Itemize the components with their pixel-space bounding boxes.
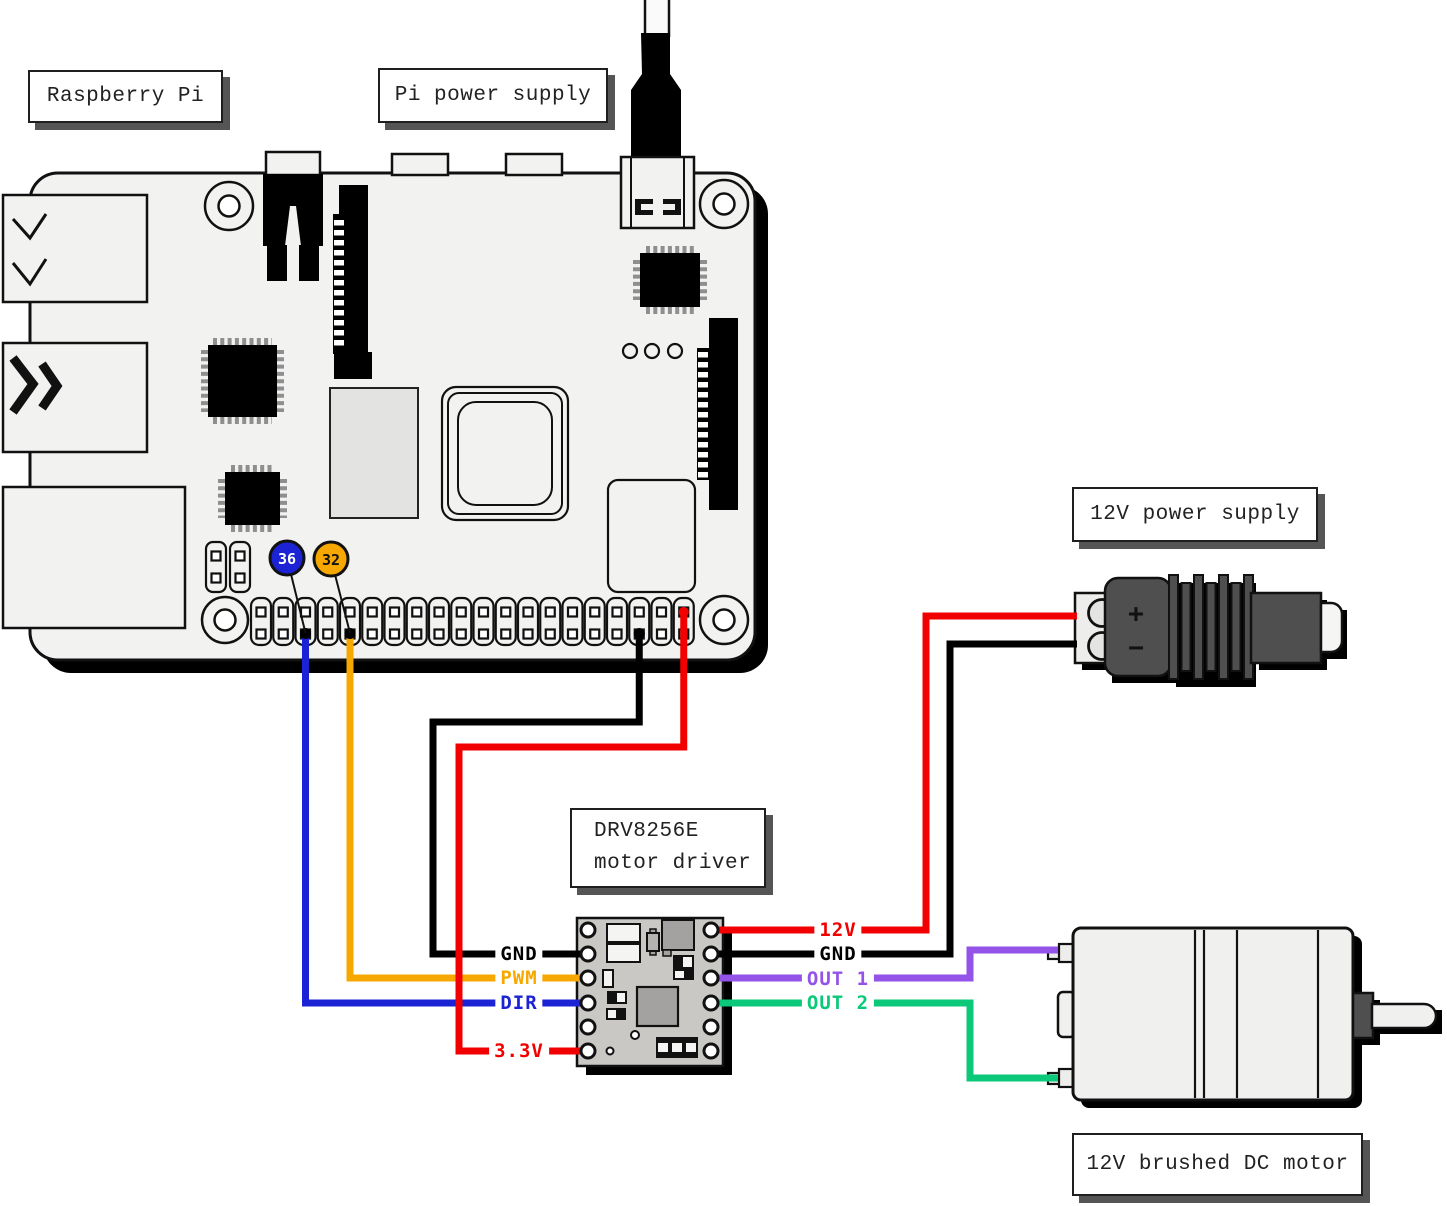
badge-pin36-text: 36 [278,550,296,568]
pin-label-12v: 12V [814,919,861,941]
jack-ribs [1169,575,1253,679]
wireless-shield [442,387,568,520]
pin-label-pwm: PWM [495,967,542,989]
camera-connector [333,185,372,379]
wire-gnd-left [433,634,639,954]
callout-motor-driver-line1: DRV8256E [594,816,699,848]
badge-pin32-text: 32 [322,551,340,569]
wire-out2 [711,1003,1058,1078]
callout-pi-power-supply-text: Pi power supply [395,84,592,107]
callout-dc-motor: 12V brushed DC motor [1072,1133,1363,1196]
ram-chip [330,388,418,518]
usb-c-power-connector [621,157,694,228]
terminal-plus-label: + [1128,599,1144,629]
sd-slot [608,480,695,592]
soc-chip [205,342,281,421]
callout-raspberry-pi: Raspberry Pi [28,70,223,123]
callout-dc-motor-text: 12V brushed DC motor [1086,1153,1348,1176]
jack-barrel [1251,593,1321,663]
pin-label-gnd-right: GND [814,943,861,965]
usb-c-plug [631,33,681,158]
usb-port-1 [3,195,147,302]
pin-label-out2: OUT 2 [802,992,874,1014]
wire-gnd-right [711,644,1077,954]
callout-12v-power-supply-text: 12V power supply [1090,503,1300,526]
hdmi-port-1 [392,154,448,175]
callout-12v-power-supply: 12V power supply [1072,487,1318,542]
motor-shaft [1372,1004,1436,1028]
pin-label-3v3: 3.3V [489,1040,549,1062]
pin-label-out1: OUT 1 [802,968,874,990]
wire-pwm [350,634,588,978]
terminal-minus-label: − [1128,633,1144,663]
pin-label-dir: DIR [495,992,542,1014]
callout-motor-driver-line2: motor driver [594,848,751,880]
ethernet-port [3,487,185,628]
test-pads [623,344,682,358]
cable [645,0,669,36]
usb-port-2 [3,343,147,452]
shaft-flange [1353,993,1373,1038]
callout-motor-driver: DRV8256E motor driver [570,808,766,888]
pi-power-cable [631,0,681,158]
pmic-chip [637,250,704,311]
callout-raspberry-pi-text: Raspberry Pi [47,85,204,108]
power-supply-12v: + − [1075,575,1347,687]
motor-body [1073,928,1353,1100]
dc-motor [1048,928,1442,1108]
hdmi-port-2 [506,154,562,175]
audio-jack-tab [266,152,320,175]
callout-pi-power-supply: Pi power supply [378,68,608,123]
diagram-canvas: + − [0,0,1447,1206]
pin-label-gnd-left: GND [495,943,542,965]
wiring-diagram: + − [0,0,1447,1206]
io-chip [222,469,284,529]
jack-tip [1321,603,1342,652]
